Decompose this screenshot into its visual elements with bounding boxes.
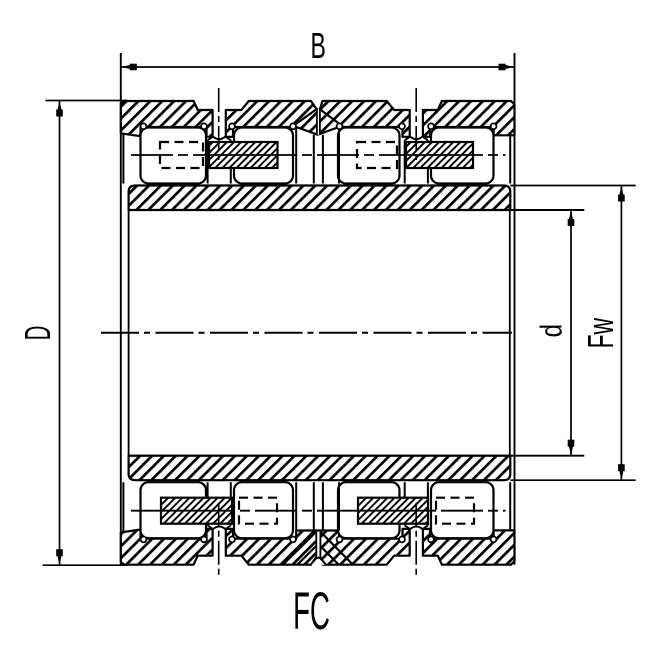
svg-text:Fw: Fw [582, 318, 621, 349]
svg-text:D: D [19, 326, 58, 341]
svg-text:B: B [311, 27, 326, 66]
svg-text:d: d [533, 324, 568, 337]
svg-text:FC: FC [293, 581, 330, 640]
